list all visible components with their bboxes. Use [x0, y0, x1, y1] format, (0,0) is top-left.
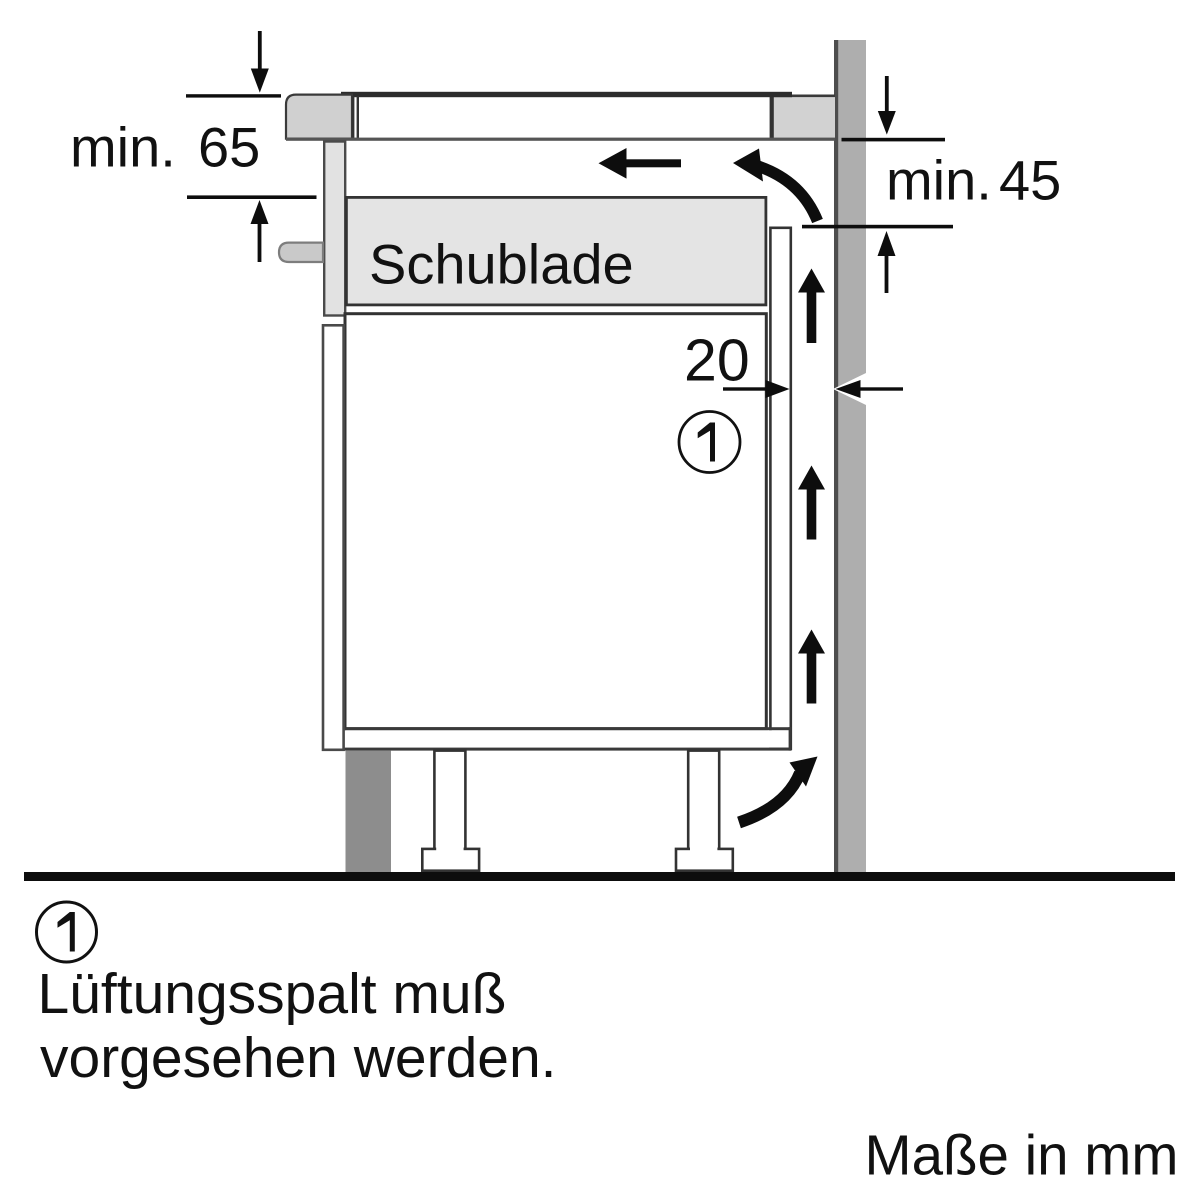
- svg-text:20: 20: [684, 328, 750, 394]
- svg-text:65: 65: [198, 116, 260, 179]
- svg-text:min.: min.: [886, 149, 992, 212]
- svg-text:vorgesehen werden.: vorgesehen werden.: [40, 1026, 557, 1090]
- svg-text:Schublade: Schublade: [369, 233, 634, 296]
- svg-text:Lüftungsspalt muß: Lüftungsspalt muß: [38, 962, 507, 1026]
- svg-text:45: 45: [999, 149, 1061, 212]
- svg-text:Maße in mm: Maße in mm: [865, 1124, 1179, 1187]
- svg-text:min.: min.: [70, 116, 176, 179]
